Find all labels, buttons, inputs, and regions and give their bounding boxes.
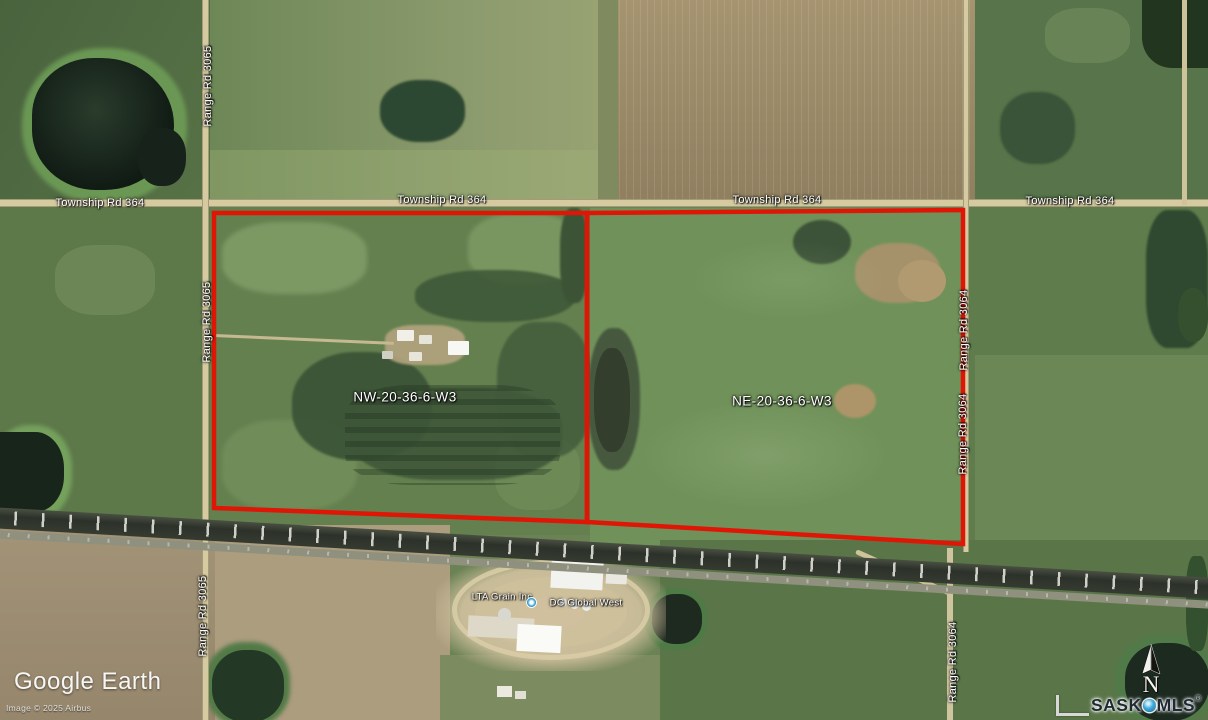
road-label-range-east: Range Rd 3064 bbox=[957, 394, 969, 475]
poi-marker-icon bbox=[527, 598, 536, 607]
parcel-label-ne: NE-20-36-6-W3 bbox=[732, 394, 832, 409]
road-label-township: Township Rd 364 bbox=[56, 197, 145, 209]
imagery-credit: Image © 2025 Airbus bbox=[6, 703, 91, 713]
road-label-range-east: Range Rd 3064 bbox=[947, 622, 959, 703]
road-label-township: Township Rd 364 bbox=[733, 194, 822, 206]
tree-cluster bbox=[1178, 288, 1208, 342]
field-mottling bbox=[640, 400, 890, 510]
farm-building bbox=[409, 352, 422, 361]
farm-building bbox=[382, 351, 393, 359]
farm-building bbox=[497, 686, 512, 697]
road-label-range-west: Range Rd 3065 bbox=[197, 576, 209, 657]
road-label-township: Township Rd 364 bbox=[398, 194, 487, 206]
farm-building bbox=[419, 335, 432, 344]
road-label-range-west: Range Rd 3065 bbox=[202, 46, 214, 127]
tree-cluster bbox=[560, 208, 588, 303]
shelterbelt-trees bbox=[415, 270, 575, 322]
tree-cluster bbox=[1142, 0, 1208, 68]
tree-cluster bbox=[1000, 92, 1075, 164]
mls-logo-sask: SASK bbox=[1091, 695, 1142, 716]
field-mottling bbox=[690, 240, 890, 320]
field-patch bbox=[1045, 8, 1130, 63]
field-patch bbox=[598, 0, 618, 205]
dry-patch bbox=[898, 260, 946, 302]
farm-building bbox=[397, 330, 414, 341]
pond bbox=[138, 128, 186, 186]
satellite-map-view: Township Rd 364 Township Rd 364 Township… bbox=[0, 0, 1208, 720]
google-earth-logo: Google Earth bbox=[14, 668, 161, 696]
pond bbox=[0, 432, 64, 512]
facility-building bbox=[516, 624, 561, 653]
mls-logo-mls: MLS bbox=[1157, 695, 1195, 716]
pond bbox=[212, 650, 284, 720]
field-patch bbox=[55, 245, 155, 315]
crop-rows-texture bbox=[598, 0, 975, 205]
parcel-label-nw: NW-20-36-6-W3 bbox=[353, 390, 456, 405]
north-arrow: N bbox=[1136, 644, 1166, 696]
road-label-township: Township Rd 364 bbox=[1026, 195, 1115, 207]
mls-globe-icon bbox=[1143, 699, 1156, 712]
mls-bracket-icon bbox=[1056, 695, 1089, 716]
farm-building bbox=[448, 341, 469, 355]
farm-building bbox=[515, 691, 526, 699]
field-patch bbox=[975, 355, 1208, 550]
field-patch bbox=[222, 222, 367, 294]
wetland bbox=[594, 348, 630, 452]
range-road-far-right bbox=[1182, 0, 1187, 205]
road-label-range-west: Range Rd 3065 bbox=[201, 282, 213, 363]
tree-cluster bbox=[380, 80, 465, 142]
sask-mls-logo: SASK MLS ® bbox=[1056, 692, 1201, 718]
poi-label-grain: LTA Grain Inc bbox=[472, 592, 533, 603]
poi-label-global: DG Global West bbox=[550, 598, 623, 609]
registered-mark: ® bbox=[1195, 694, 1201, 703]
road-label-range-east: Range Rd 3064 bbox=[958, 290, 970, 371]
storage-tank bbox=[498, 608, 511, 621]
